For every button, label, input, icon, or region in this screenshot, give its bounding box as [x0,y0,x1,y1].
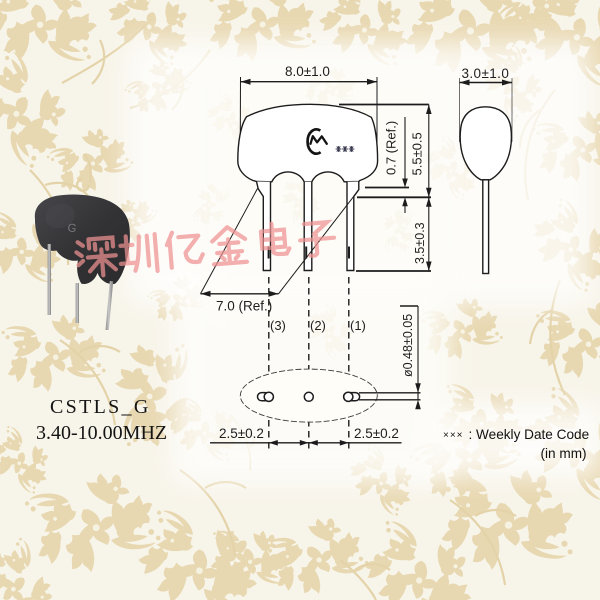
svg-text:5.5±0.5: 5.5±0.5 [410,132,425,175]
svg-text:3.0±1.0: 3.0±1.0 [462,66,510,81]
svg-text:0.7 (Ref.): 0.7 (Ref.) [384,121,399,175]
svg-text:(3): (3) [270,318,286,333]
svg-text:(in mm): (in mm) [541,446,587,461]
svg-text:CSTLS_G: CSTLS_G [50,396,151,418]
svg-text:: Weekly Date Code: : Weekly Date Code [469,427,590,442]
svg-text:×××: ××× [443,430,464,441]
svg-text:(1): (1) [350,318,366,333]
svg-text:(2): (2) [310,318,326,333]
svg-text:7.0 (Ref.): 7.0 (Ref.) [216,299,272,314]
svg-text:G: G [67,222,78,235]
svg-text:3.40-10.00MHZ: 3.40-10.00MHZ [36,422,167,444]
svg-text:8.0±1.0: 8.0±1.0 [285,64,330,79]
svg-text:3.5±0.3: 3.5±0.3 [413,222,427,264]
svg-text:2.5±0.2: 2.5±0.2 [354,426,399,441]
svg-text:ø0.48±0.05: ø0.48±0.05 [401,314,415,377]
svg-text:2.5±0.2: 2.5±0.2 [219,426,264,441]
